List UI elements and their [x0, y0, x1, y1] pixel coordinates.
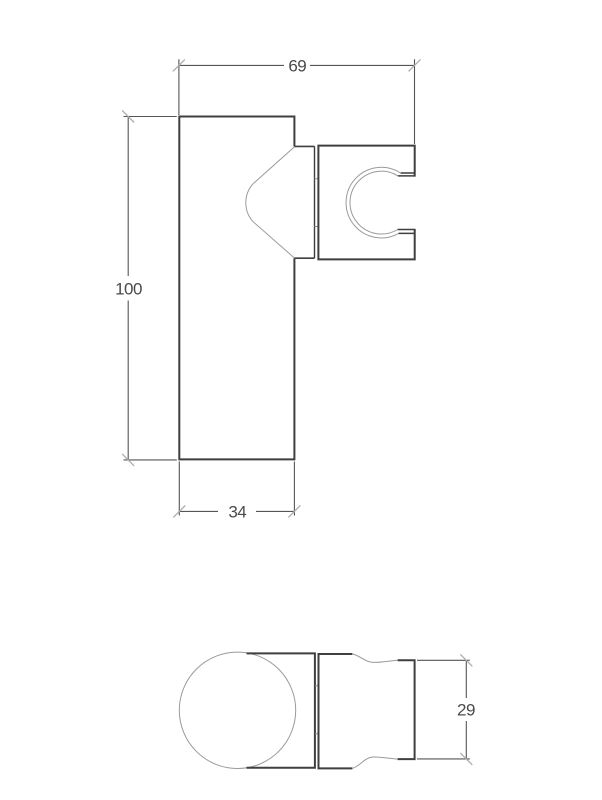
svg-text:69: 69	[288, 57, 306, 76]
svg-text:34: 34	[228, 502, 246, 521]
svg-text:100: 100	[115, 280, 142, 299]
svg-text:29: 29	[457, 701, 475, 720]
